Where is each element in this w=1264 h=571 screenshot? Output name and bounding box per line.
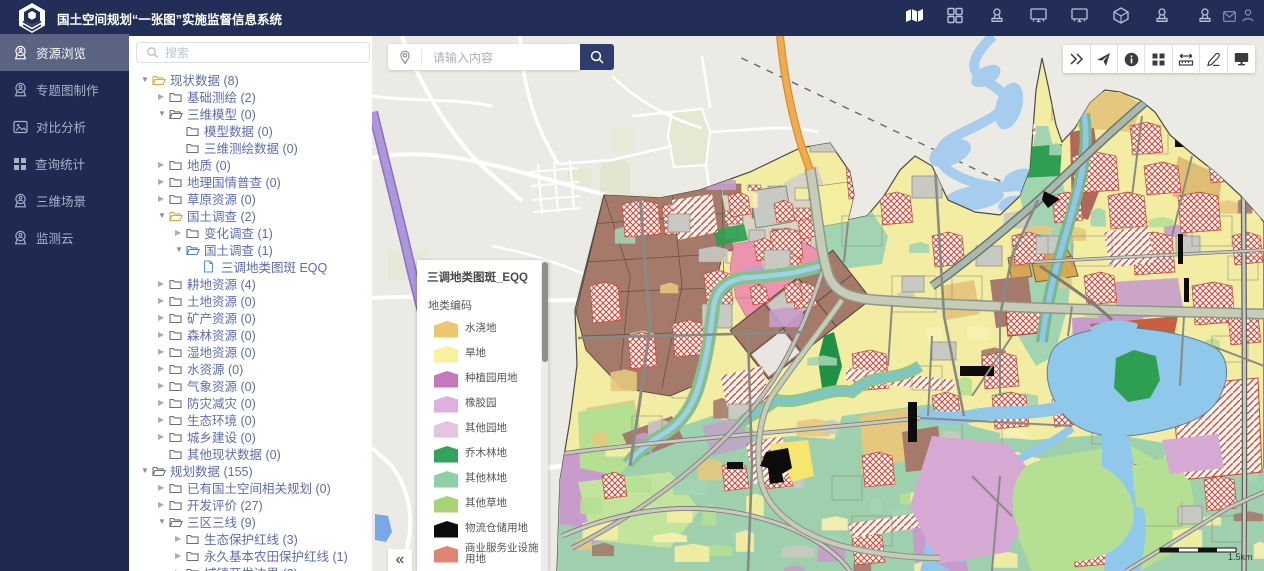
svg-text:1.5km: 1.5km xyxy=(1228,552,1253,562)
